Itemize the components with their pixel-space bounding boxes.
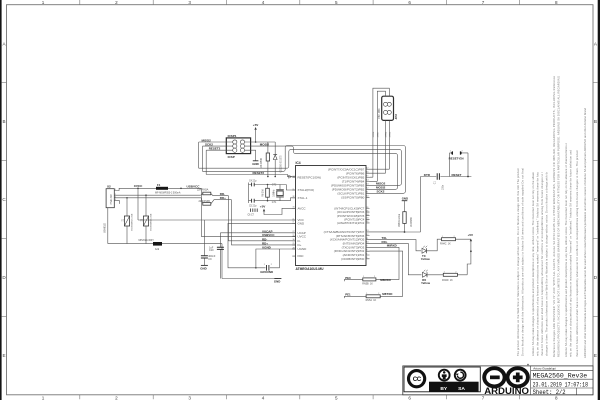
svg-text:2: 2 — [455, 272, 456, 274]
svg-text:26: 26 — [366, 207, 368, 209]
svg-text:(SS/PCINT0)PB0: (SS/PCINT0)PB0 — [341, 195, 364, 199]
svg-text:22R RN3A: 22R RN3A — [197, 189, 209, 192]
svg-text:rely on the absence or charact: rely on the absence or characteristics o… — [569, 149, 573, 357]
svg-text:DTR: DTR — [424, 173, 431, 177]
svg-text:R6 1M: R6 1M — [261, 190, 264, 197]
svg-text:9: 9 — [366, 246, 367, 248]
svg-text:15: 15 — [366, 176, 368, 178]
svg-text:M8RXD: M8RXD — [380, 278, 391, 282]
svg-text:GND: GND — [252, 162, 259, 166]
svg-text:UGND: UGND — [298, 247, 308, 251]
svg-text:13: 13 — [366, 184, 368, 186]
svg-text:1: 1 — [442, 236, 443, 238]
svg-text:7: 7 — [366, 253, 367, 255]
svg-text:RN5B 1K: RN5B 1K — [362, 282, 373, 285]
svg-text:GND: GND — [298, 221, 305, 225]
svg-text:25: 25 — [366, 210, 368, 212]
svg-text:these for future definition an: these for future definition and shall ha… — [540, 172, 544, 356]
svg-text:CG0603MLC-05E: CG0603MLC-05E — [150, 213, 152, 231]
svg-text:X2: X2 — [107, 185, 111, 189]
svg-text:USB boot En: USB boot En — [398, 213, 401, 227]
svg-text:L1: L1 — [156, 247, 160, 251]
svg-text:GND: GND — [274, 279, 280, 283]
svg-text:2: 2 — [454, 236, 455, 238]
svg-text:Arturo Guadalupi: Arturo Guadalupi — [533, 366, 556, 370]
svg-text:24: 24 — [293, 176, 295, 178]
svg-text:PE1: PE1 — [345, 293, 351, 297]
svg-text:PAD: PAD — [298, 254, 305, 258]
svg-text:CD1206-S01575: CD1206-S01575 — [281, 155, 283, 173]
svg-text:30: 30 — [293, 239, 295, 241]
svg-text:GT2: GT2 — [272, 184, 277, 186]
svg-text:(OC0B/INT0)PD0: (OC0B/INT0)PD0 — [341, 257, 365, 261]
svg-text:1: 1 — [366, 293, 367, 295]
svg-text:B: B — [594, 119, 597, 124]
svg-text:+5V: +5V — [260, 204, 267, 208]
svg-text:17: 17 — [366, 168, 368, 170]
svg-text:1: 1 — [363, 276, 364, 278]
svg-text:XVCC: XVCC — [134, 184, 143, 188]
svg-text:RESET-EN: RESET-EN — [449, 157, 464, 161]
svg-text:2: 2 — [378, 293, 379, 295]
svg-text:PB7..PB4: PB7..PB4 — [379, 108, 381, 119]
svg-text:CC: CC — [413, 376, 422, 383]
svg-text:XTAL-1: XTAL-1 — [298, 196, 308, 200]
svg-text:32: 32 — [293, 196, 295, 198]
svg-text:+5V: +5V — [253, 123, 260, 127]
svg-text:5: 5 — [335, 396, 338, 400]
svg-text:1K RN5D: 1K RN5D — [411, 217, 413, 227]
svg-text:RESET(PC1/DW): RESET(PC1/DW) — [298, 176, 322, 180]
svg-text:(AIN2/PCINT11)PC2: (AIN2/PCINT11)PC2 — [337, 221, 365, 225]
svg-text:GND: GND — [402, 196, 408, 200]
svg-text:31: 31 — [293, 207, 295, 209]
svg-text:3: 3 — [188, 0, 191, 5]
svg-text:5: 5 — [335, 0, 338, 5]
svg-text:2: 2 — [374, 276, 375, 278]
svg-text:RESET2: RESET2 — [209, 147, 221, 151]
svg-text:23.01.2019 17:07:18: 23.01.2019 17:07:18 — [533, 381, 589, 388]
svg-text:2: 2 — [271, 264, 272, 266]
svg-text:1: 1 — [444, 272, 445, 274]
svg-text:E: E — [2, 353, 5, 358]
svg-text:PE0: PE0 — [345, 276, 351, 280]
svg-text:11: 11 — [366, 238, 368, 240]
svg-text:24: 24 — [366, 214, 368, 216]
svg-text:GT1: GT1 — [272, 202, 277, 204]
svg-text:RESET: RESET — [452, 173, 462, 177]
svg-text:1 PB5: 1 PB5 — [389, 131, 391, 138]
svg-text:2: 2 — [462, 151, 463, 153]
svg-text:MOSI2: MOSI2 — [376, 186, 386, 190]
svg-text:6: 6 — [366, 257, 367, 259]
svg-text:1: 1 — [115, 189, 116, 191]
svg-text:RN4C 1K: RN4C 1K — [440, 242, 451, 245]
svg-text:C6 C7: C6 C7 — [248, 215, 255, 217]
svg-text:7: 7 — [482, 0, 485, 5]
svg-text:+: + — [527, 363, 529, 367]
svg-text:28: 28 — [293, 247, 295, 249]
svg-text:M8TXD: M8TXD — [382, 292, 393, 296]
svg-text:2: 2 — [115, 396, 118, 400]
svg-text:CG0603MLC-05E: CG0603MLC-05E — [131, 213, 133, 231]
svg-text:PN61729: PN61729 — [110, 194, 113, 205]
svg-text:ARDUINO and other Arduino bran: ARDUINO and other Arduino brands and log… — [583, 107, 587, 358]
svg-text:Do not finalize a design with: Do not finalize a design with this infor… — [521, 168, 525, 356]
svg-text:14: 14 — [366, 180, 368, 182]
svg-text:13: 13 — [366, 230, 368, 232]
svg-text:ARDUINO: ARDUINO — [484, 386, 529, 397]
svg-text:1 PB4: 1 PB4 — [386, 131, 388, 138]
svg-text:100n: 100n — [442, 184, 444, 190]
svg-text:B: B — [2, 119, 5, 124]
svg-text:these for future definition an: these for future definition and shall ha… — [575, 150, 579, 357]
svg-text:+5V: +5V — [468, 233, 473, 237]
svg-text:GND: GND — [200, 266, 206, 270]
svg-text:BY: BY — [440, 386, 448, 392]
svg-text:4: 4 — [115, 199, 116, 201]
svg-text:RD+: RD+ — [220, 196, 226, 200]
svg-text:6: 6 — [408, 396, 411, 400]
svg-text:Sheet: 2/2: Sheet: 2/2 — [533, 389, 566, 396]
svg-text:16: 16 — [366, 172, 368, 174]
svg-text:12: 12 — [366, 234, 368, 236]
svg-text:1: 1 — [264, 264, 265, 266]
svg-text:12: 12 — [366, 188, 368, 190]
svg-text:ATMEGA16U2-MU: ATMEGA16U2-MU — [296, 267, 325, 271]
svg-text:1: 1 — [42, 396, 45, 400]
svg-text:rely on the absence or charact: rely on the absence or characteristics o… — [536, 171, 540, 356]
svg-text:MF-MSMF050-2 500mA: MF-MSMF050-2 500mA — [155, 192, 181, 195]
svg-text:1: 1 — [42, 0, 45, 5]
svg-text:27: 27 — [293, 231, 295, 233]
svg-text:RN4D 1K: RN4D 1K — [442, 279, 453, 282]
svg-text:Arduino SA may make changes to: Arduino SA may make changes to specifica… — [531, 171, 535, 356]
svg-text:F1: F1 — [157, 183, 161, 187]
svg-text:Yellow: Yellow — [421, 257, 431, 261]
svg-text:10: 10 — [366, 196, 368, 198]
svg-text:3: 3 — [188, 396, 191, 400]
svg-text:RN5A 1K: RN5A 1K — [366, 299, 377, 302]
svg-text:AVCC: AVCC — [298, 206, 307, 210]
svg-text:SCK2: SCK2 — [377, 190, 385, 194]
svg-text:6: 6 — [408, 0, 411, 5]
svg-text:11: 11 — [366, 192, 368, 194]
svg-text:E: E — [594, 353, 597, 358]
svg-text:1: 1 — [293, 188, 294, 190]
svg-text:REGARDING PRODUCTS, INCLUDING: REGARDING PRODUCTS, INCLUDING BUT NOT LI… — [556, 76, 560, 357]
svg-text:22: 22 — [366, 221, 368, 223]
svg-text:29: 29 — [293, 243, 295, 245]
svg-text:3: 3 — [293, 222, 294, 224]
svg-text:4: 4 — [262, 396, 265, 400]
svg-text:JP2: JP2 — [394, 114, 398, 120]
svg-text:The product information on the: The product information on the Web Site … — [516, 168, 520, 356]
svg-text:SA: SA — [458, 386, 465, 392]
svg-text:4: 4 — [293, 218, 294, 220]
svg-text:C10: C10 — [209, 249, 214, 252]
svg-text:31: 31 — [293, 235, 295, 237]
svg-text:1 PB6: 1 PB6 — [373, 131, 375, 138]
svg-text:changes to them. The product i: changes to them. The product information… — [545, 171, 549, 356]
svg-text:XTAL2(PC0): XTAL2(PC0) — [298, 188, 315, 192]
svg-text:4: 4 — [262, 0, 265, 5]
svg-text:1: 1 — [450, 151, 451, 153]
svg-text:10K R50B: 10K R50B — [261, 158, 263, 169]
svg-text:8: 8 — [366, 249, 367, 251]
svg-text:MH2029-300Y: MH2029-300Y — [139, 239, 155, 242]
svg-text:GROUND: GROUND — [260, 270, 273, 274]
svg-text:M8RXD: M8RXD — [387, 244, 397, 248]
svg-text:23: 23 — [366, 218, 368, 220]
svg-text:10: 10 — [366, 242, 368, 244]
svg-text:C4 22p: C4 22p — [249, 181, 257, 183]
svg-text:MEGA2560_Rev3e: MEGA2560_Rev3e — [533, 373, 588, 380]
svg-text:C5 22p: C5 22p — [249, 205, 257, 207]
svg-text:2: 2 — [115, 0, 118, 5]
svg-text:ICSP1: ICSP1 — [228, 134, 237, 138]
svg-text:1 PB7: 1 PB7 — [377, 131, 379, 138]
svg-text:Arduino SA may make changes to: Arduino SA may make changes to specifica… — [564, 142, 568, 357]
svg-text:16MHz: 16MHz — [273, 189, 275, 197]
svg-text:Reference Designs ARE PROVIDED: Reference Designs ARE PROVIDED "AS IS" A… — [552, 75, 556, 357]
svg-text:8: 8 — [555, 396, 558, 400]
svg-text:Yellow: Yellow — [421, 281, 431, 285]
svg-text:ICSP: ICSP — [228, 155, 235, 159]
svg-text:8: 8 — [555, 0, 558, 5]
svg-text:IC4: IC4 — [296, 161, 301, 165]
svg-text:USHIELD: USHIELD — [105, 223, 107, 233]
svg-text:UGND: UGND — [262, 246, 272, 250]
